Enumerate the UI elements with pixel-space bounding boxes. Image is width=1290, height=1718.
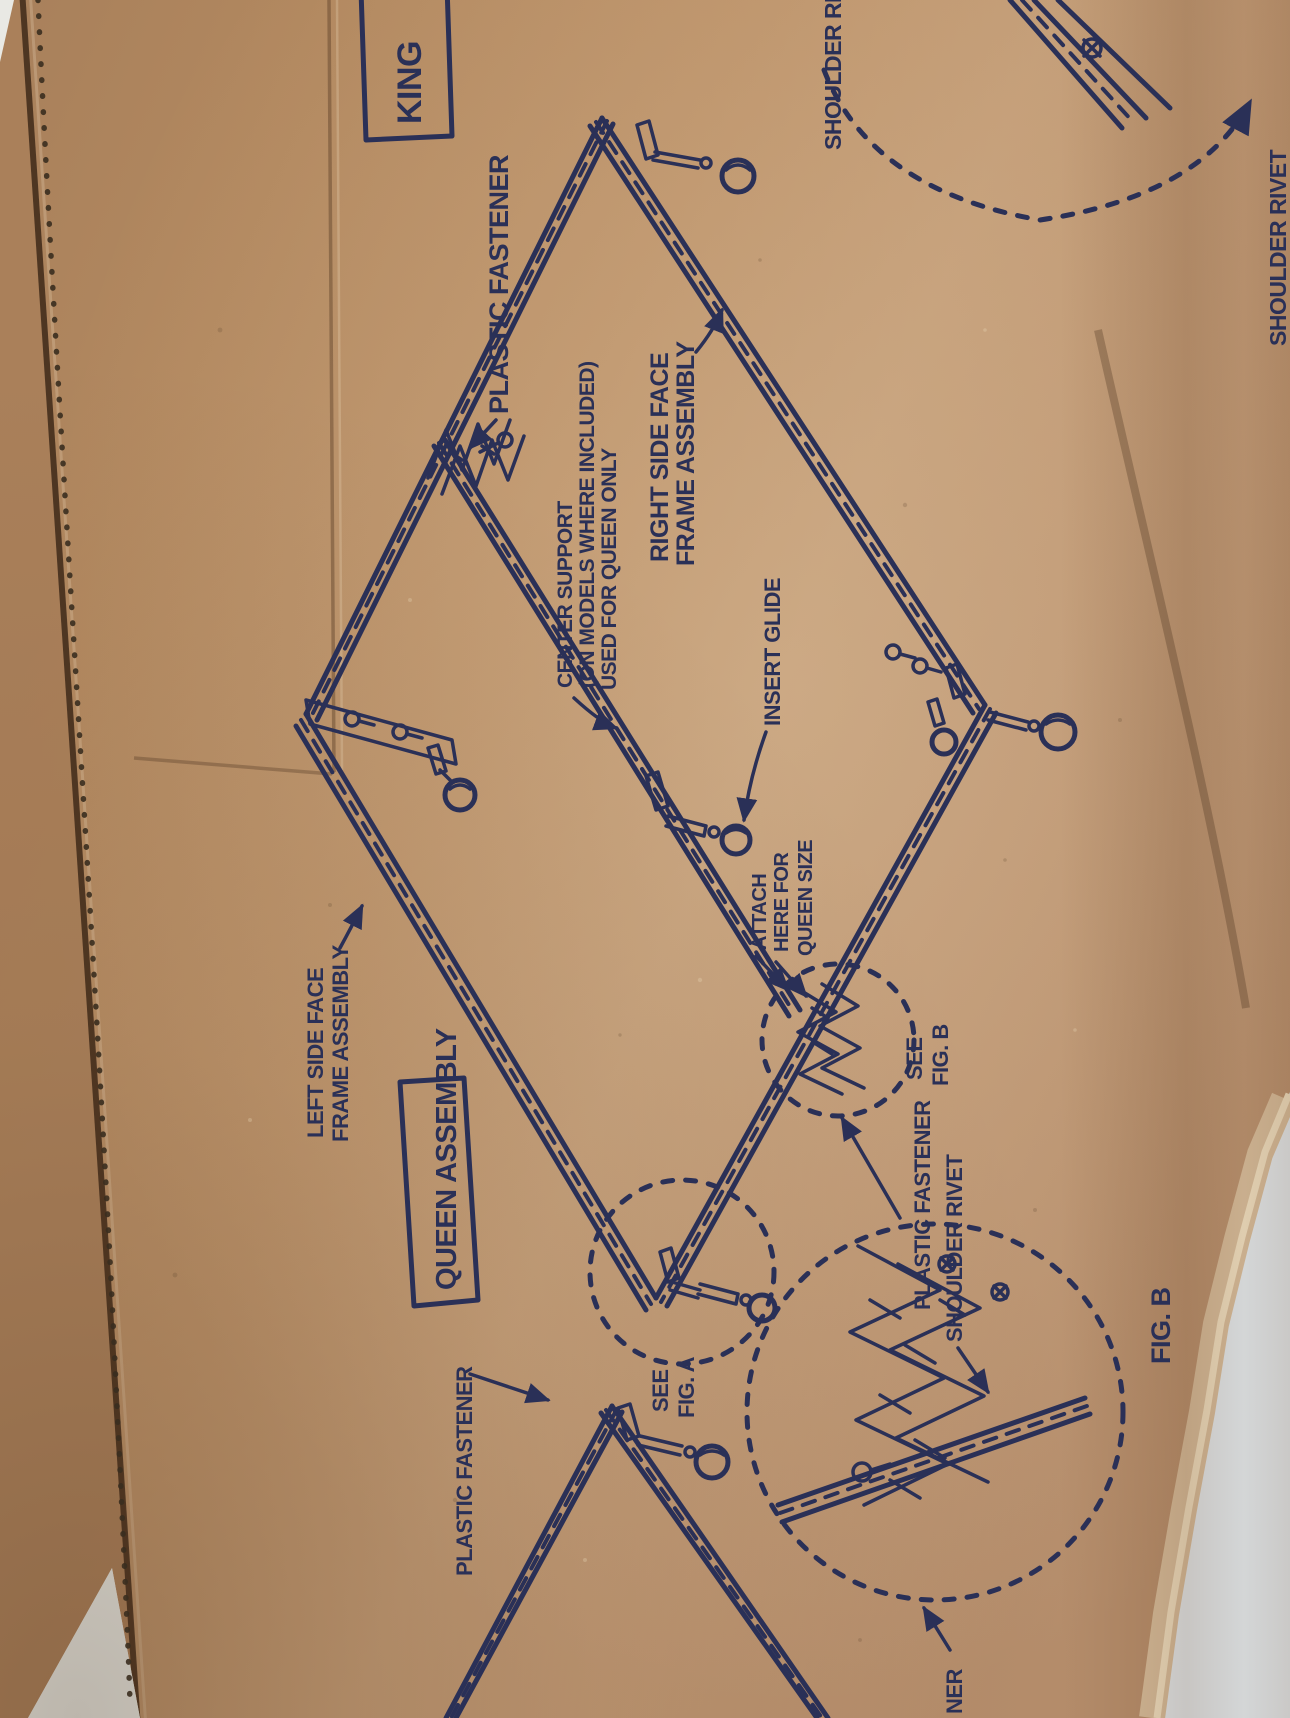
box-scene: KING <box>0 0 1290 1718</box>
label-insert-glide: INSERT GLIDE <box>760 578 785 726</box>
label-right-side-2: FRAME ASSEMBLY <box>672 341 700 566</box>
label-center-support-3: USED FOR QUEEN ONLY <box>598 448 621 690</box>
label-plastic-fastener-mid: PLASTIC FASTENER <box>910 1100 935 1310</box>
label-fig-b: FIG. B <box>1146 1288 1176 1365</box>
label-see-fig-a-1: SEE <box>648 1369 673 1412</box>
label-shoulder-rivet-top: SHOULDER RIVET <box>820 0 846 150</box>
label-see-fig-b-2: FIG. B <box>928 1024 953 1086</box>
label-attach-here-2: HERE FOR <box>771 852 793 952</box>
label-see-fig-a-2: FIG. A <box>674 1356 699 1418</box>
label-plastic-fastener-bottom-left: PLASTIC FASTENER <box>452 1366 477 1576</box>
label-plastic-fastener-top: PLASTIC FASTENER <box>484 155 514 414</box>
label-see-fig-b-1: SEE <box>902 1037 927 1080</box>
label-left-side-2: FRAME ASSEMBLY <box>328 944 353 1142</box>
label-shoulder-rivet-right: SHOULDER RIVET <box>1265 149 1290 346</box>
label-center-support-1: CENTER SUPPORT <box>554 501 577 688</box>
label-partial-fastener-bottom: NER <box>942 1668 967 1714</box>
cardboard-box-photo: KING <box>0 0 1290 1718</box>
king-label: KING <box>391 41 429 124</box>
label-right-side-1: RIGHT SIDE FACE <box>646 353 674 562</box>
label-center-support-2: (ON MODELS WHERE INCLUDED) <box>576 362 599 689</box>
label-attach-here-1: ATTACH <box>749 874 771 950</box>
label-shoulder-rivet-mid: SHOULDER RIVET <box>942 1154 967 1342</box>
label-left-side-1: LEFT SIDE FACE <box>303 968 328 1138</box>
label-attach-here-3: QUEEN SIZE <box>795 840 817 956</box>
corner-vignette <box>0 0 1290 1718</box>
queen-assembly-label: QUEEN ASSEMBLY <box>431 1028 463 1290</box>
